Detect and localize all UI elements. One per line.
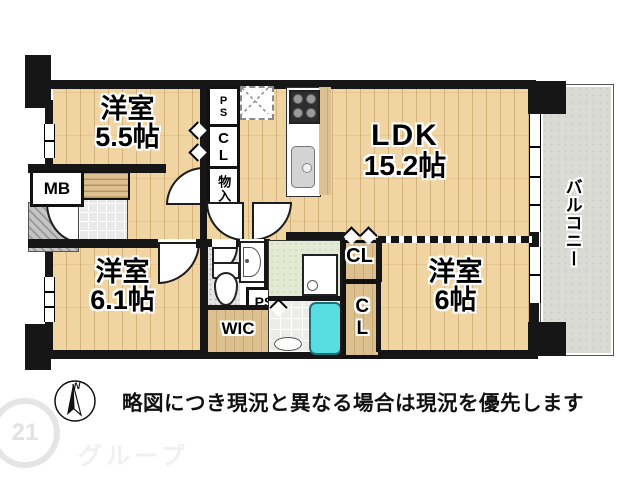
disclaimer-text: 略図につき現況と異なる場合は現況を優先します <box>122 386 584 416</box>
wall-room6-top-dashed <box>378 236 532 243</box>
wall-hall-bottom-left <box>28 239 158 248</box>
window-left-upper <box>44 124 55 158</box>
wall-left-1 <box>45 100 53 124</box>
wall-right-low <box>529 303 539 327</box>
compass-north-label: N <box>74 381 81 391</box>
wall-room61-right <box>200 247 208 352</box>
closet-cl-side-label: CL <box>352 292 372 344</box>
wall-left-4 <box>45 322 53 352</box>
meter-box: MB <box>30 170 84 207</box>
room-61-label: 洋室6.1帖 <box>55 258 190 314</box>
room-6-label: 洋室6帖 <box>388 258 523 314</box>
closet-hall-label: CL <box>215 130 232 164</box>
compass: N <box>53 379 97 423</box>
wic-label: WIC <box>210 320 266 338</box>
shoe-cabinet <box>80 171 130 200</box>
kitchen-sink-icon <box>291 146 315 188</box>
storage-monoire-label: 物入 <box>217 175 231 203</box>
window-left-lower <box>44 277 55 322</box>
watermark-badge: 21 <box>0 398 60 468</box>
refrigerator-space <box>240 86 274 120</box>
bath-stool-icon <box>274 337 302 351</box>
wall-room6-left <box>376 238 381 352</box>
floorplan-image: 21 グループ バルコニー 洋室5.5帖 PS CL <box>0 0 640 480</box>
stove-icon <box>289 90 320 124</box>
wall-balcony-top-block <box>528 81 566 114</box>
watermark-text: グループ <box>78 436 189 471</box>
bathtub-icon <box>309 302 342 355</box>
ldk-label: LDK 15.2帖 <box>330 120 480 180</box>
ps-top-label: PS <box>218 95 230 119</box>
room-55-label: 洋室5.5帖 <box>60 95 195 151</box>
closet-cl-top-label: CL <box>344 246 375 267</box>
wall-closet-left <box>200 89 207 239</box>
ps-top: PS <box>207 86 240 128</box>
window-room6-balcony <box>529 247 541 303</box>
window-ldk-balcony <box>529 114 541 232</box>
meter-box-label: MB <box>44 179 70 199</box>
washing-machine-icon <box>302 254 338 296</box>
closet-hall: CL <box>207 124 240 170</box>
balcony-label: バルコニー <box>563 148 581 298</box>
genkan-tile <box>78 196 128 241</box>
